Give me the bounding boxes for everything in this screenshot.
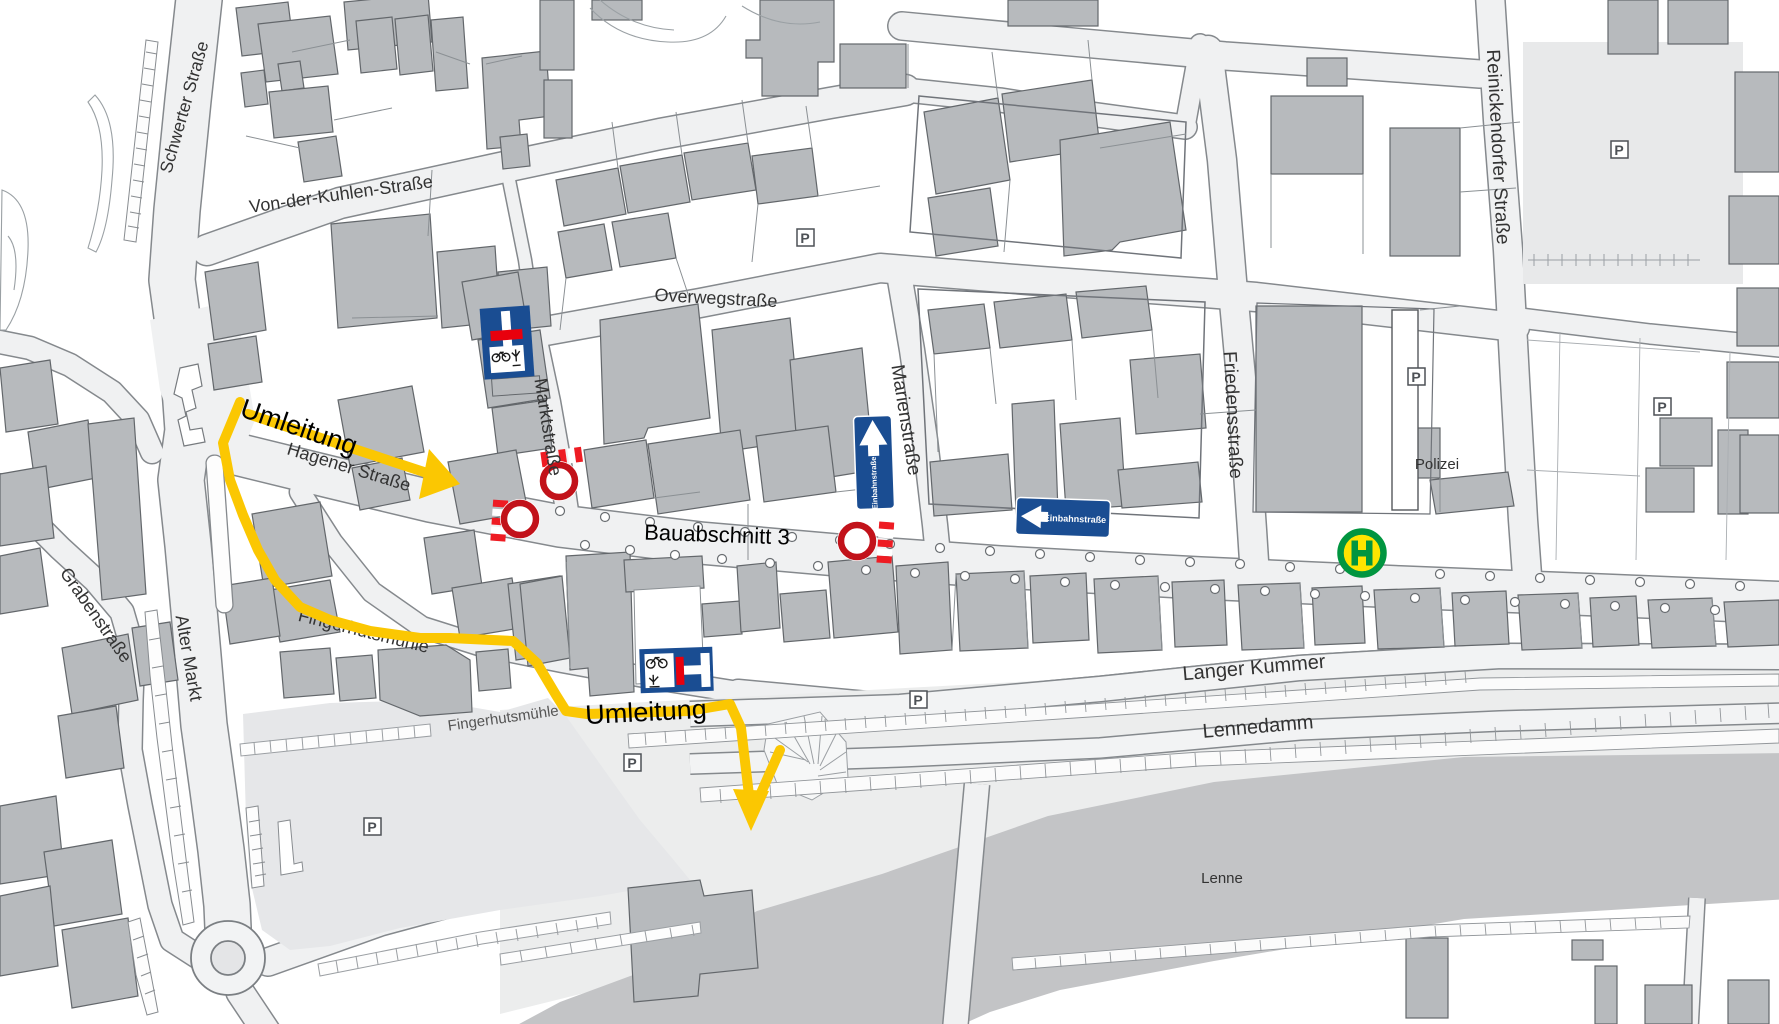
svg-text:P: P — [367, 819, 376, 835]
svg-text:P: P — [627, 755, 636, 771]
svg-text:P: P — [1657, 399, 1666, 415]
svg-text:Umleitung: Umleitung — [585, 694, 708, 730]
svg-text:Einbahnstraße: Einbahnstraße — [869, 456, 880, 509]
svg-text:Polizei: Polizei — [1415, 456, 1459, 473]
svg-text:P: P — [800, 230, 809, 246]
svg-text:P: P — [1411, 369, 1420, 385]
svg-text:Lenne: Lenne — [1201, 870, 1243, 887]
svg-text:P: P — [913, 692, 922, 708]
svg-text:P: P — [1614, 142, 1623, 158]
svg-text:Bauabschnitt 3: Bauabschnitt 3 — [644, 519, 790, 549]
